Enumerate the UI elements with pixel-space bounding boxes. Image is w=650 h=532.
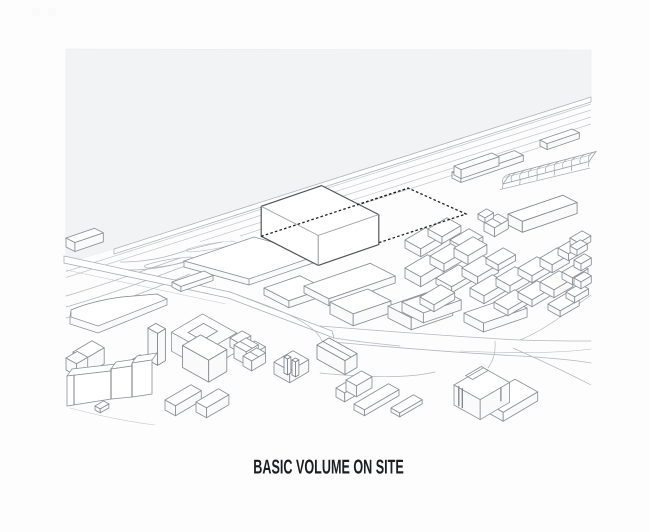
svg-text:BASIC VOLUME ON SITE: BASIC VOLUME ON SITE [253,457,404,479]
